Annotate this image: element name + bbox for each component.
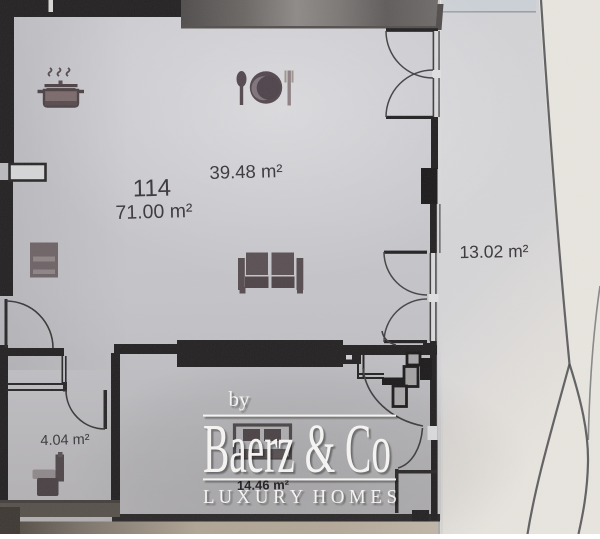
svg-text:by: by	[229, 387, 251, 411]
svg-text:L U X U R Y H O M E S: L U X U R Y H O M E S	[203, 487, 397, 508]
svg-text:Baerz & Co: Baerz & Co	[203, 411, 391, 488]
